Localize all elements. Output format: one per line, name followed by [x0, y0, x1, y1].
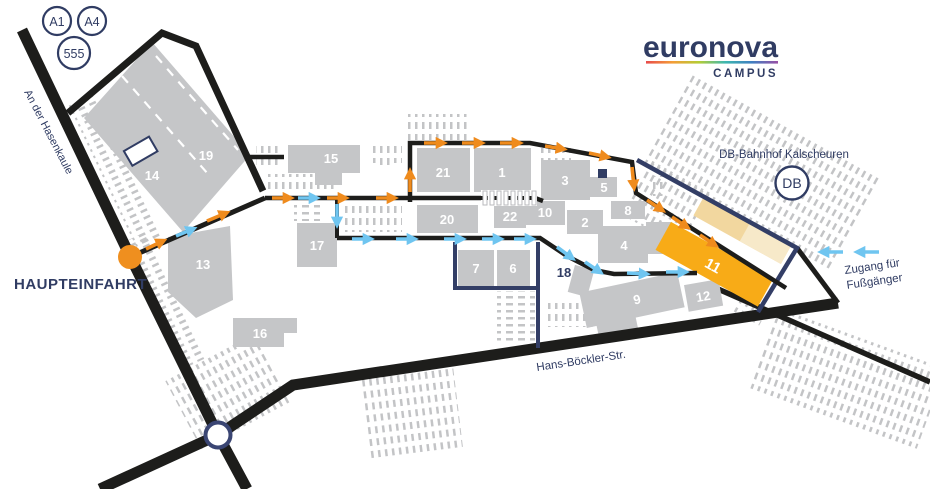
map-canvas: 14 19 13 16 17 15 21 1 3 5 20 22 10 2 8 …: [0, 0, 930, 489]
railway-tracks-hatch-south: [748, 307, 930, 448]
main-entrance-label: HAUPTEINFAHRT: [14, 276, 147, 293]
building-10-label: 10: [538, 205, 552, 220]
building-3-label: 3: [561, 173, 568, 188]
building-7-label: 7: [472, 261, 479, 276]
badge-a4-label: A4: [84, 15, 99, 29]
building-16-label: 16: [253, 326, 267, 341]
logo-sub: CAMPUS: [713, 68, 778, 80]
logo-rainbow-line: [646, 61, 778, 64]
logo-brand: euronova: [643, 31, 778, 64]
logo: euronova CAMPUS: [643, 31, 778, 80]
parking-hatch-south: [359, 366, 464, 462]
db-station-label: DB-Bahnhof Kalscheuren: [719, 149, 849, 161]
railway-crossing: [481, 190, 537, 206]
building-1-label: 1: [498, 165, 505, 180]
area-18-label: 18: [557, 265, 571, 280]
building-5-label: 5: [600, 180, 607, 195]
marker-square: [598, 169, 607, 178]
building-13-label: 13: [196, 257, 210, 272]
blue-arrow: [627, 273, 646, 274]
building-19-label: 19: [199, 148, 213, 163]
building-15-label: 15: [324, 151, 338, 166]
building-22-label: 22: [503, 209, 517, 224]
building-8-label: 8: [624, 203, 631, 218]
street-hans-boeckler-label: Hans-Böckler-Str.: [536, 349, 627, 374]
db-badge-label: DB: [782, 175, 801, 191]
road-southwest: [100, 435, 218, 489]
pedestrian-access-label: Zugang für Fußgänger: [844, 257, 904, 292]
badge-555-label: 555: [64, 47, 85, 61]
building-2-label: 2: [581, 215, 588, 230]
main-entrance-dot: [118, 245, 142, 269]
badge-a1-label: A1: [49, 15, 64, 29]
building-21-label: 21: [436, 165, 450, 180]
building-6-label: 6: [509, 261, 516, 276]
campus-map: 14 19 13 16 17 15 21 1 3 5 20 22 10 2 8 …: [0, 0, 930, 489]
building-4-label: 4: [620, 238, 628, 253]
building-14-label: 14: [145, 168, 160, 183]
building-17-label: 17: [310, 238, 324, 253]
building-12-label: 12: [695, 288, 712, 305]
roundabout: [206, 423, 231, 448]
orange-arrow: [632, 167, 634, 187]
road-badges: A1 A4 555: [43, 7, 106, 69]
building-20-label: 20: [440, 212, 454, 227]
